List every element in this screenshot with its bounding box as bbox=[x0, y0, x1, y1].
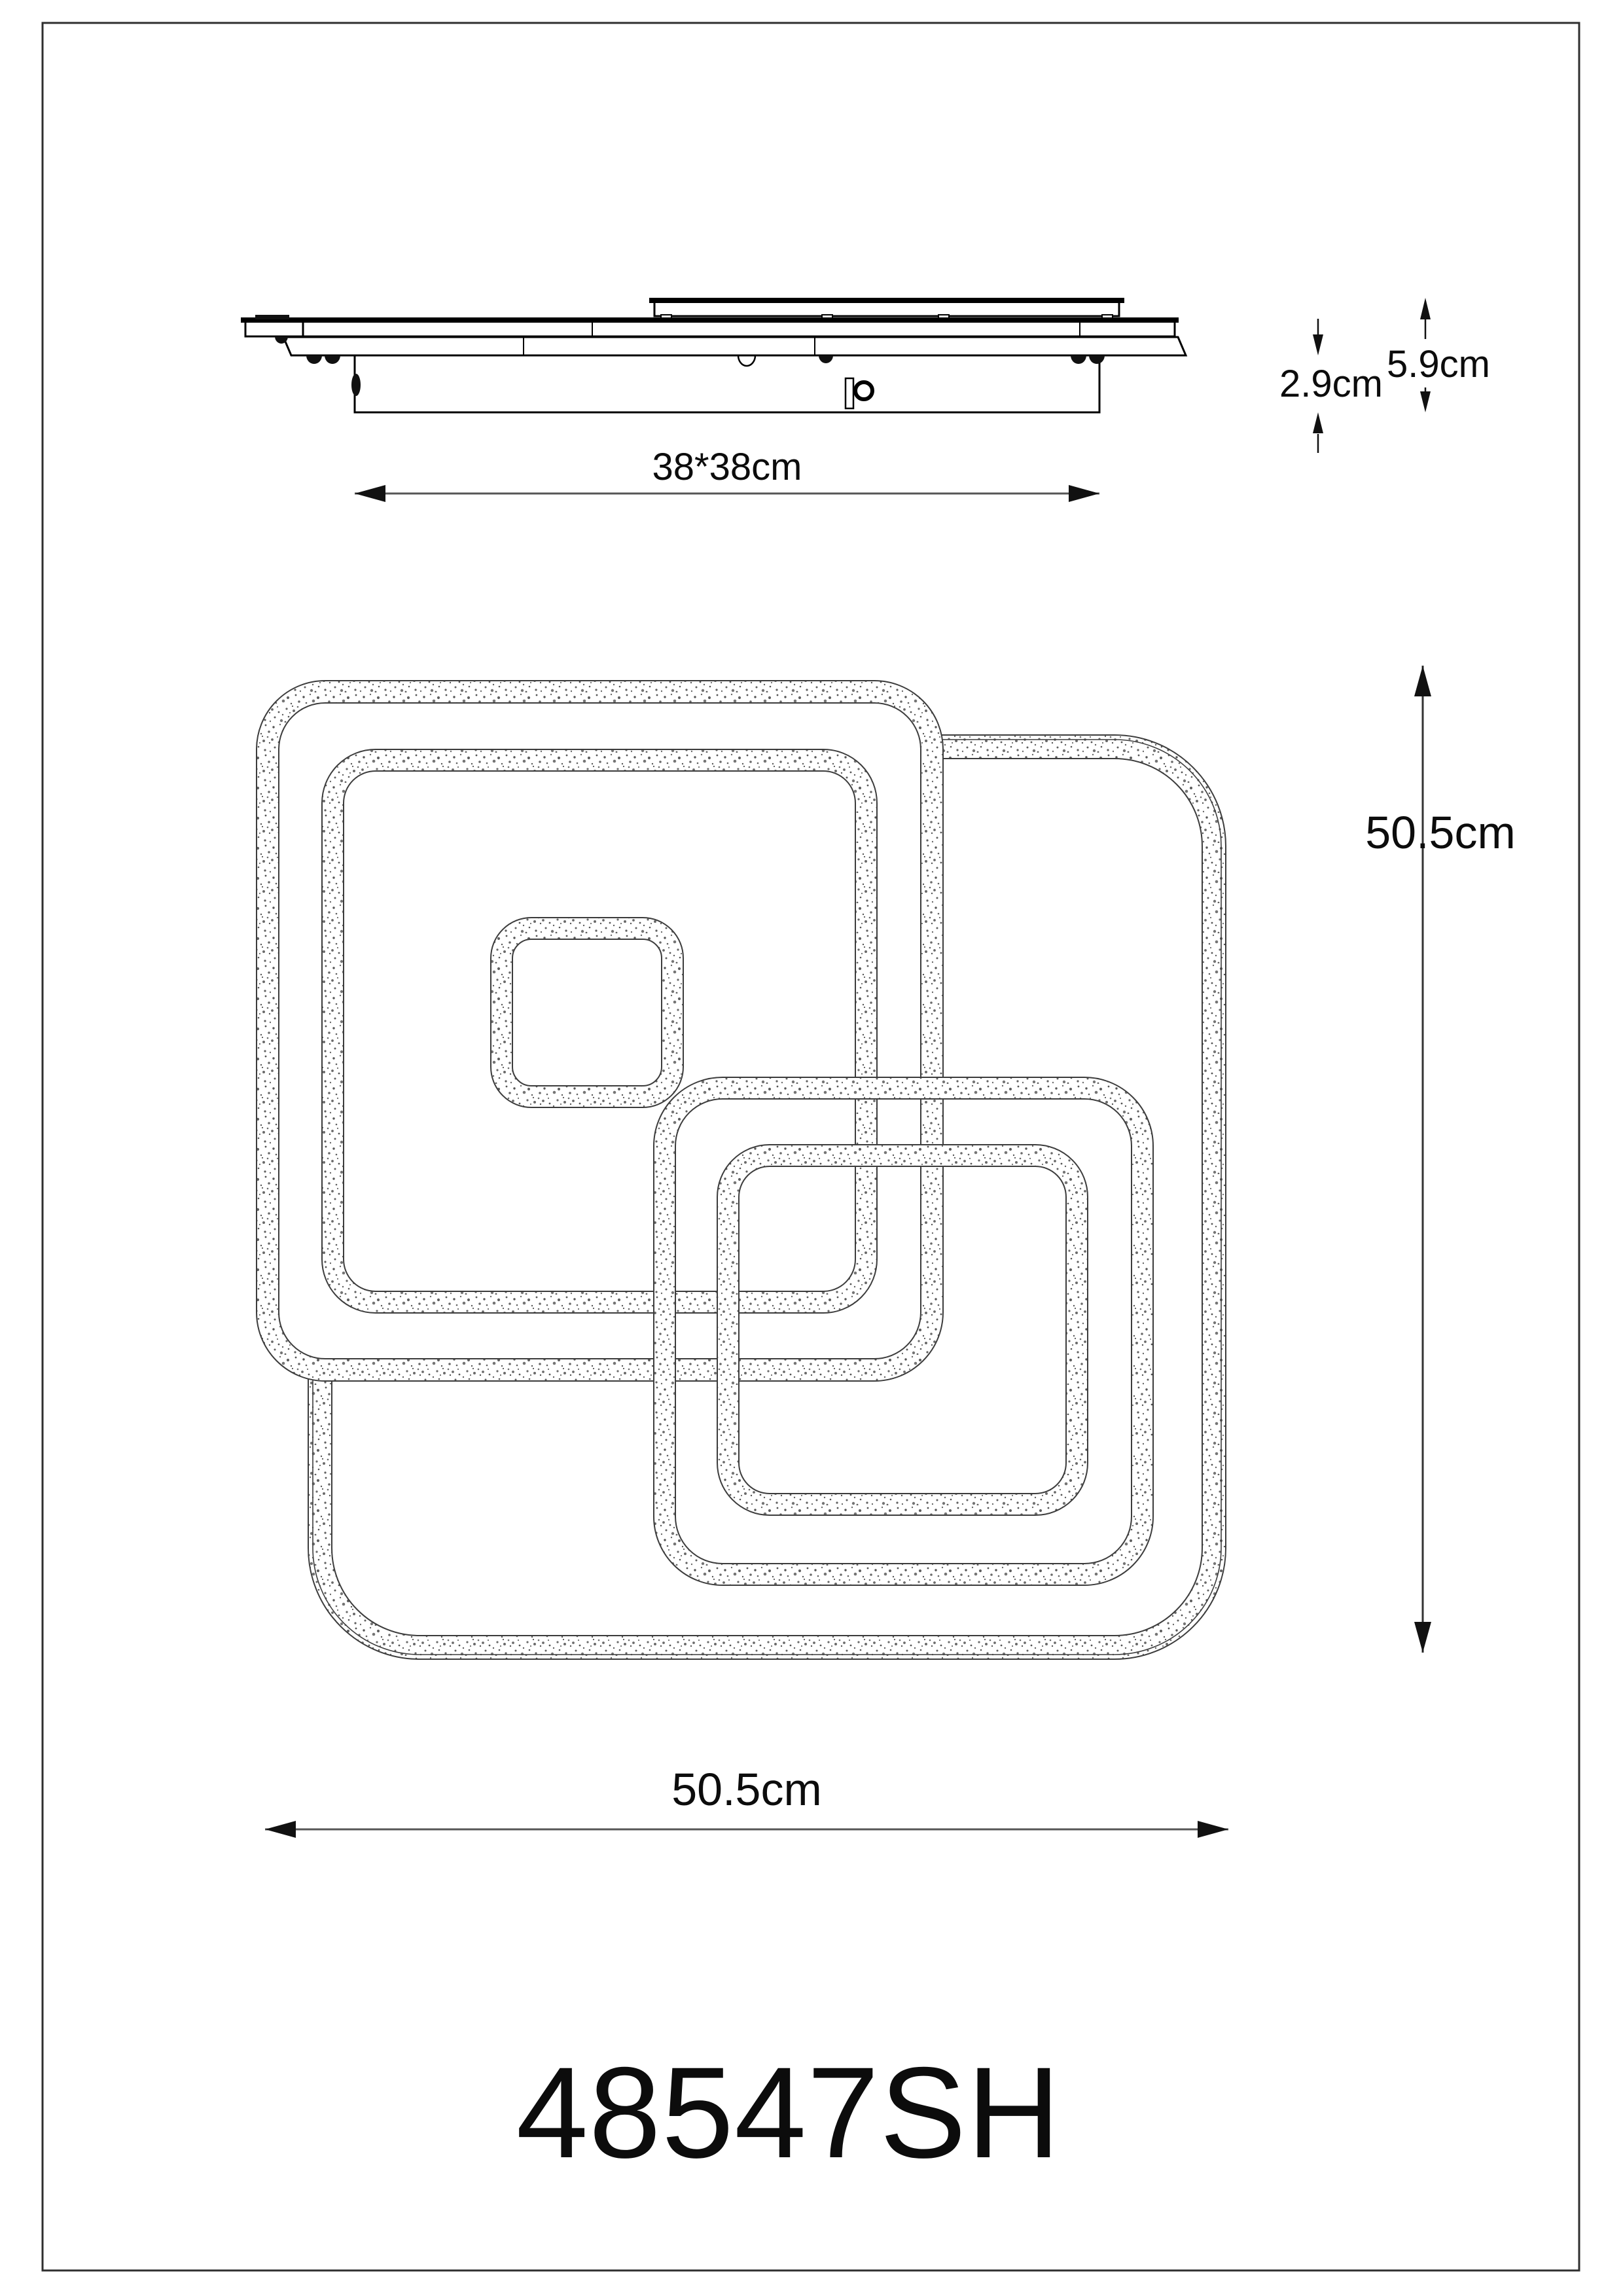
arrowhead-up-icon bbox=[1313, 412, 1323, 433]
screw-bump bbox=[325, 355, 340, 364]
arrowhead-up-icon bbox=[1414, 666, 1431, 696]
arrowhead-left-icon bbox=[355, 485, 385, 502]
plan-width-dimension: 50.5cm bbox=[671, 1764, 822, 1815]
side-canopy-height-dimension: 2.9cm bbox=[1279, 363, 1383, 405]
arrowhead-up-icon bbox=[1420, 298, 1431, 319]
side-gasket bbox=[255, 315, 289, 319]
ring-large-upper-left-underlay bbox=[257, 681, 943, 1381]
arrowhead-down-icon bbox=[1420, 391, 1431, 412]
drawing-page: 38*38cm 2.9cm 5.9cm 50.5cm 50.5cm 48547S… bbox=[0, 0, 1623, 2296]
model-number-title: 48547SH bbox=[516, 2040, 1061, 2185]
side-total-height-dimension: 5.9cm bbox=[1387, 343, 1490, 386]
side-lower-bar bbox=[283, 337, 1186, 355]
arrowhead-right-icon bbox=[1069, 485, 1099, 502]
box-notch bbox=[351, 374, 361, 396]
arrowhead-down-icon bbox=[1313, 334, 1323, 355]
arrowhead-down-icon bbox=[1414, 1622, 1431, 1653]
side-width-dimension: 38*38cm bbox=[652, 446, 802, 488]
arrowhead-right-icon bbox=[1198, 1821, 1228, 1838]
plan-height-dimension: 50.5cm bbox=[1365, 807, 1516, 858]
terminal-screw-icon bbox=[855, 382, 872, 399]
arrowhead-left-icon bbox=[265, 1821, 296, 1838]
screw-bump bbox=[306, 355, 322, 364]
technical-drawing-canvas: 38*38cm 2.9cm 5.9cm 50.5cm 50.5cm 48547S… bbox=[0, 0, 1623, 2296]
top-view-rings bbox=[257, 681, 1226, 1659]
side-mounting-box bbox=[355, 355, 1099, 412]
ring-large-upper-left bbox=[257, 681, 943, 1381]
side-view bbox=[241, 299, 1186, 412]
terminal-bracket bbox=[846, 378, 853, 408]
